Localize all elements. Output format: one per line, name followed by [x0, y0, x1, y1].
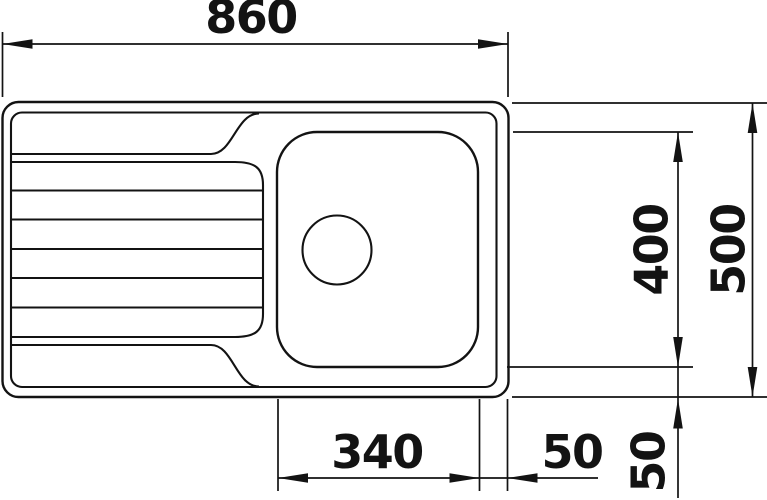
sink-body [3, 102, 509, 397]
dim-label-860: 860 [205, 0, 297, 44]
arrowhead-right [450, 473, 480, 483]
dim-label-500: 500 [702, 204, 756, 296]
dim-label-50-horizontal: 50 [541, 425, 602, 479]
dim-label-340: 340 [331, 425, 423, 479]
arrowhead-up [673, 132, 683, 162]
arrowhead-left [3, 39, 33, 49]
arrowhead-down [673, 337, 683, 367]
dim-basin-depth: 400 [625, 132, 683, 367]
arrowhead-left [508, 473, 538, 483]
basin [277, 132, 478, 367]
arrowhead-down [748, 367, 758, 397]
drainboard-bevel-bottom [12, 345, 260, 387]
drain-hole [303, 216, 372, 285]
dim-basin-to-bottom: 50 [622, 367, 683, 498]
dim-total-width: 860 [3, 0, 509, 97]
arrowhead-right [478, 39, 508, 49]
drainboard-bevel-top [12, 114, 260, 155]
drawing-canvas: 860 400 500 50 [0, 0, 767, 500]
drainboard-ridges [12, 191, 264, 308]
arrowhead-left [278, 473, 308, 483]
arrowhead-up [748, 103, 758, 133]
dim-label-400: 400 [625, 204, 679, 296]
dim-basin-to-edge: 50 [508, 425, 603, 483]
arrowhead-up [673, 399, 683, 429]
dim-total-depth: 500 [702, 103, 758, 397]
dim-label-50-vertical: 50 [622, 431, 676, 492]
sink-technical-drawing: 860 400 500 50 [0, 0, 767, 500]
